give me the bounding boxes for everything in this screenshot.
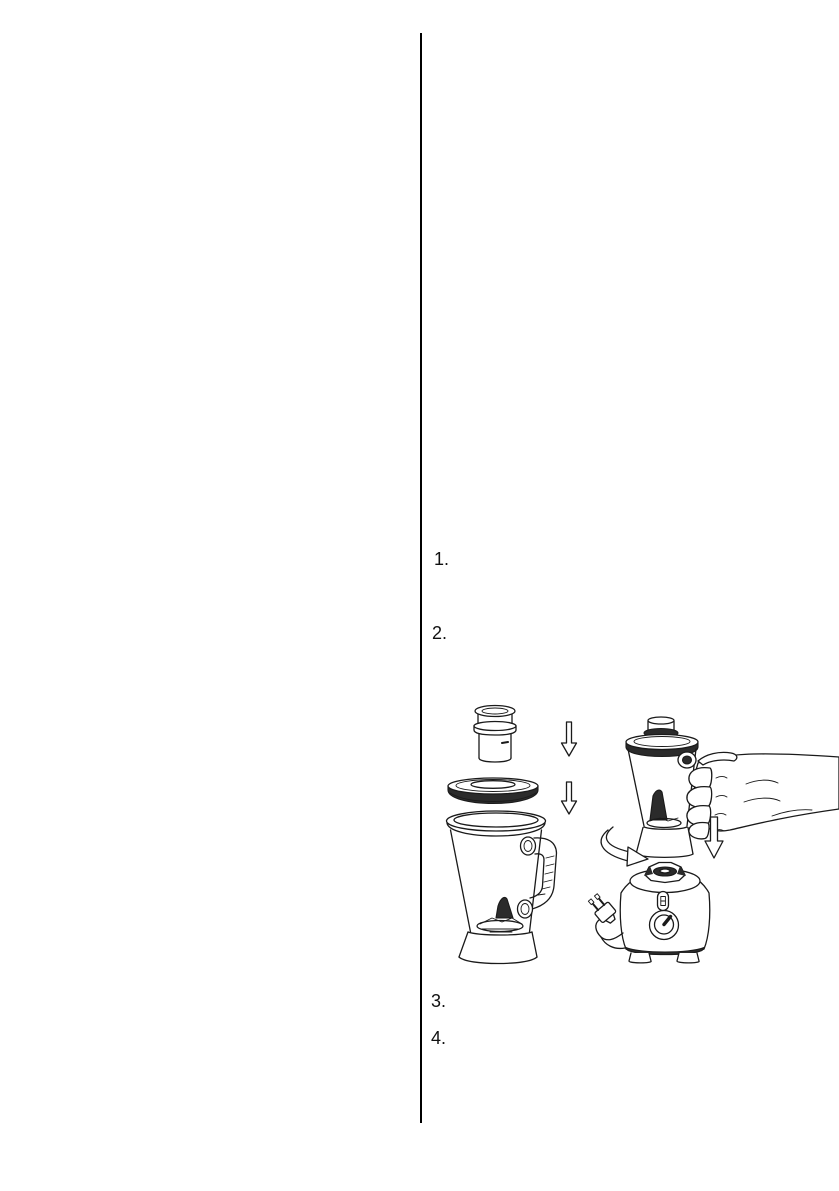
assembled-jar: [626, 717, 698, 857]
manual-page: 1. 2. 3. 4.: [0, 0, 839, 1191]
step-1-marker: 1.: [434, 549, 449, 570]
step-2-marker: 2.: [432, 623, 447, 644]
hand-holding-jar: [678, 752, 839, 839]
blender-jar: [447, 811, 557, 964]
down-arrow-icon: [562, 722, 577, 756]
jar-lid: [448, 778, 538, 804]
down-arrow-icon: [562, 782, 577, 814]
step-4-marker: 4.: [431, 1028, 446, 1049]
measuring-cup: [474, 706, 516, 763]
power-plug: [586, 892, 625, 949]
column-divider: [420, 33, 422, 1123]
motor-base: [586, 863, 710, 963]
blender-assembly-illustration: [440, 690, 839, 980]
step-3-marker: 3.: [431, 991, 446, 1012]
